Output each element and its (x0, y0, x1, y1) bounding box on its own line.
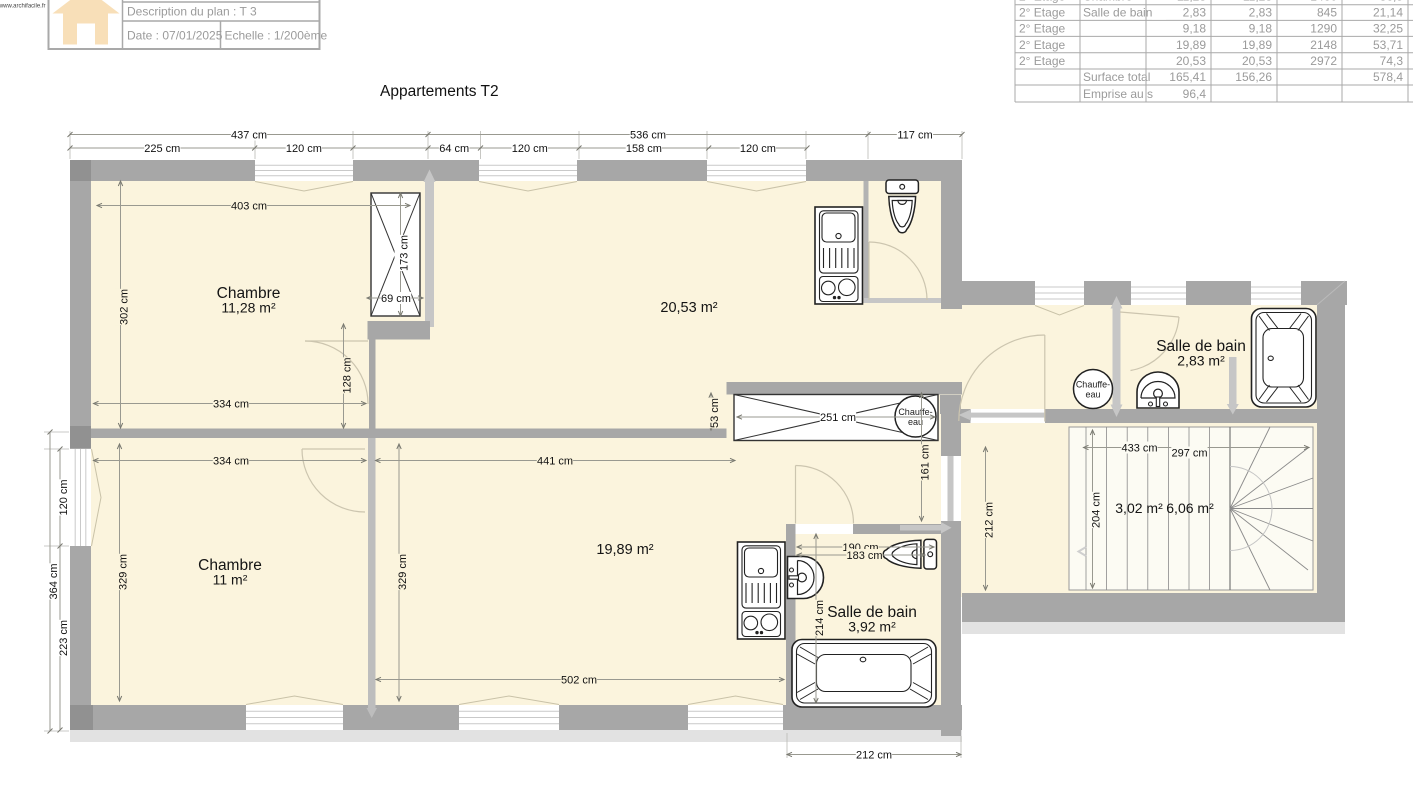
svg-text:2° Etage: 2° Etage (1019, 38, 1065, 52)
svg-text:433 cm: 433 cm (1121, 442, 1157, 454)
svg-text:403 cm: 403 cm (231, 200, 267, 212)
svg-text:20,53: 20,53 (1242, 54, 1272, 68)
svg-text:64 cm: 64 cm (439, 143, 469, 155)
svg-text:334 cm: 334 cm (213, 455, 249, 467)
svg-text:74,3: 74,3 (1380, 54, 1404, 68)
svg-text:117 cm: 117 cm (897, 129, 932, 141)
svg-text:156,26: 156,26 (1235, 70, 1272, 84)
svg-text:120 cm: 120 cm (286, 143, 322, 155)
svg-text:120 cm: 120 cm (512, 143, 548, 155)
svg-text:2° Etage: 2° Etage (1019, 5, 1065, 19)
svg-text:Description du plan : T 3: Description du plan : T 3 (127, 5, 257, 19)
svg-text:11,28: 11,28 (1177, 0, 1206, 4)
svg-text:214 cm: 214 cm (814, 600, 826, 636)
svg-text:212 cm: 212 cm (983, 502, 995, 538)
svg-text:2,83 m²: 2,83 m² (1177, 353, 1225, 369)
svg-text:225 cm: 225 cm (144, 143, 180, 155)
svg-text:9,18: 9,18 (1249, 21, 1273, 35)
svg-text:11 m²: 11 m² (213, 572, 248, 588)
svg-text:Surface total: Surface total (1083, 70, 1150, 84)
svg-text:120 cm: 120 cm (58, 479, 70, 515)
svg-text:161 cm: 161 cm (919, 444, 931, 480)
svg-text:437 cm: 437 cm (231, 129, 267, 141)
svg-text:11,28: 11,28 (1243, 0, 1272, 4)
svg-text:165,41: 165,41 (1169, 70, 1206, 84)
svg-text:Emprise au s: Emprise au s (1083, 87, 1153, 101)
svg-text:128 cm: 128 cm (341, 357, 353, 393)
svg-text:2148: 2148 (1310, 38, 1337, 52)
svg-text:6,06 m²: 6,06 m² (1166, 500, 1214, 516)
svg-text:20,53 m²: 20,53 m² (660, 300, 717, 316)
svg-text:Date : 07/01/2025: Date : 07/01/2025 (127, 29, 223, 43)
svg-text:578,4: 578,4 (1373, 70, 1403, 84)
svg-text:9,18: 9,18 (1183, 21, 1207, 35)
svg-text:223 cm: 223 cm (58, 620, 70, 656)
svg-text:Chambre: Chambre (1083, 0, 1133, 4)
svg-text:32,25: 32,25 (1373, 21, 1403, 35)
svg-text:53 cm: 53 cm (709, 398, 721, 428)
svg-text:120 cm: 120 cm (740, 143, 776, 155)
svg-text:53,71: 53,71 (1373, 38, 1403, 52)
svg-text:441 cm: 441 cm (537, 455, 573, 467)
svg-text:2,83: 2,83 (1183, 5, 1207, 19)
svg-text:2° Etage: 2° Etage (1019, 21, 1065, 35)
svg-text:302 cm: 302 cm (118, 289, 130, 325)
svg-text:eau: eau (1085, 390, 1100, 400)
svg-text:173 cm: 173 cm (398, 235, 410, 271)
svg-text:19,89 m²: 19,89 m² (596, 542, 653, 558)
svg-text:Chauffe-: Chauffe- (898, 407, 932, 417)
svg-text:329 cm: 329 cm (117, 554, 129, 590)
svg-text:334 cm: 334 cm (213, 398, 249, 410)
svg-text:Appartements T2: Appartements T2 (380, 83, 499, 100)
svg-text:69 cm: 69 cm (381, 293, 411, 305)
svg-text:204 cm: 204 cm (1090, 492, 1102, 528)
svg-text:158 cm: 158 cm (626, 143, 662, 155)
svg-text:Salle de bain: Salle de bain (1083, 5, 1152, 19)
svg-text:eau: eau (908, 417, 923, 427)
svg-text:845: 845 (1317, 5, 1337, 19)
svg-text:Echelle : 1/200ème: Echelle : 1/200ème (225, 29, 328, 43)
svg-text:2972: 2972 (1310, 54, 1337, 68)
svg-text:2° Etage: 2° Etage (1019, 0, 1065, 4)
svg-text:183 cm: 183 cm (846, 550, 882, 562)
svg-text:www.archifacile.fr: www.archifacile.fr (0, 4, 46, 10)
svg-text:364 cm: 364 cm (48, 563, 60, 599)
svg-text:251 cm: 251 cm (820, 412, 856, 424)
svg-text:Chauffe-: Chauffe- (1076, 380, 1110, 390)
svg-text:2° Etage: 2° Etage (1019, 54, 1065, 68)
svg-text:1290: 1290 (1310, 21, 1337, 35)
svg-text:11,28 m²: 11,28 m² (221, 300, 276, 316)
svg-text:20,53: 20,53 (1176, 54, 1206, 68)
svg-text:502 cm: 502 cm (561, 674, 597, 686)
svg-text:21,14: 21,14 (1373, 5, 1403, 19)
svg-text:297 cm: 297 cm (1171, 447, 1207, 459)
svg-text:19,89: 19,89 (1176, 38, 1206, 52)
svg-text:96,4: 96,4 (1183, 87, 1207, 101)
svg-text:212 cm: 212 cm (856, 749, 892, 761)
svg-text:3,02 m²: 3,02 m² (1115, 500, 1163, 516)
svg-text:3,92 m²: 3,92 m² (848, 619, 896, 635)
svg-text:329 cm: 329 cm (397, 554, 409, 590)
svg-text:19,89: 19,89 (1242, 38, 1272, 52)
svg-text:36,5: 36,5 (1380, 0, 1404, 4)
svg-text:536 cm: 536 cm (630, 129, 666, 141)
svg-text:2,83: 2,83 (1249, 5, 1273, 19)
svg-text:1460: 1460 (1310, 0, 1337, 4)
